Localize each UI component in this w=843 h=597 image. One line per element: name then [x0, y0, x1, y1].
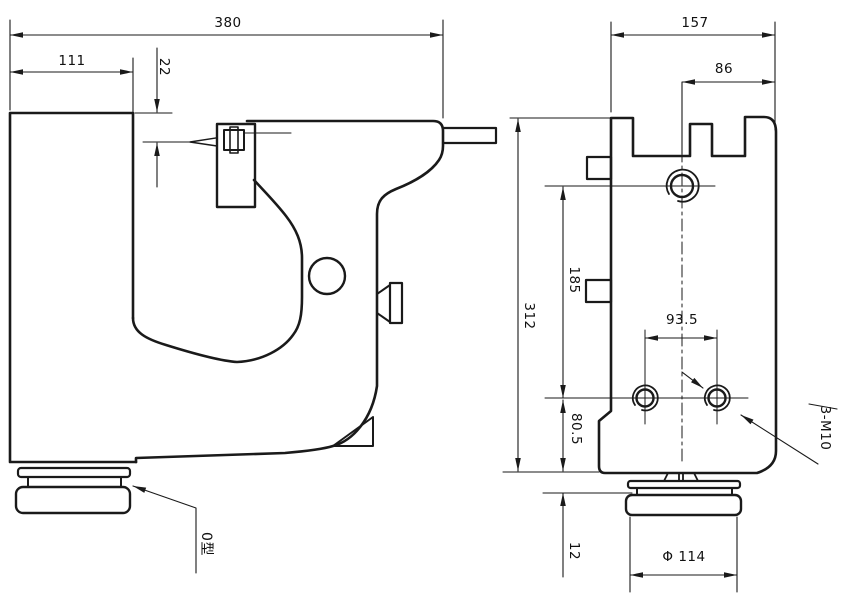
arrowhead	[154, 99, 160, 112]
dim-hole-spacing: 93.5	[666, 312, 698, 328]
needle-head-block	[217, 124, 255, 207]
dim-312-lines	[510, 118, 611, 471]
arrowhead	[724, 572, 737, 578]
hand-hole	[309, 258, 345, 294]
pulley-bottom-flange	[626, 495, 741, 515]
needle	[190, 138, 217, 146]
arrowhead	[682, 79, 695, 85]
arrowhead	[691, 378, 703, 388]
pulley-top-flange	[628, 481, 740, 488]
gusset-rib	[333, 417, 373, 446]
arrowhead	[430, 32, 443, 38]
side-knob	[390, 283, 402, 323]
pulley-drum	[16, 487, 130, 513]
dim-top-offset: 22	[156, 58, 172, 76]
arrowhead	[120, 69, 133, 75]
dim-lower-height: 80.5	[568, 413, 584, 445]
arrowhead	[560, 400, 566, 413]
arrowhead	[10, 69, 23, 75]
arrowhead	[560, 458, 566, 471]
side-tab-upper	[587, 157, 611, 179]
arrowhead	[611, 32, 624, 38]
arrowhead	[560, 187, 566, 200]
dim-total-height: 312	[521, 302, 537, 329]
thread-leader-lines	[682, 372, 837, 464]
technical-drawing-page: 380 111 22 0型 157 86 312 185 80.5 12 93.…	[0, 0, 843, 597]
left-view-drawing	[10, 20, 496, 573]
arrowhead	[630, 572, 643, 578]
dim-12-lines	[543, 493, 632, 577]
arrowhead	[704, 335, 717, 341]
belt-leader-arrow	[133, 486, 146, 493]
pulley-top-flange	[18, 468, 130, 477]
needle-clamp	[224, 130, 244, 150]
arrowhead	[560, 493, 566, 506]
side-tab-lower	[586, 280, 611, 302]
dim-foot-height: 12	[566, 542, 582, 560]
belt-type-label: 0型	[197, 532, 217, 556]
dim-157-lines	[611, 22, 775, 130]
dim-pulley-diameter: Φ 114	[662, 549, 705, 565]
arrowhead	[154, 143, 160, 156]
arrowhead	[560, 385, 566, 398]
arrowhead	[515, 458, 521, 471]
belt-leader-line	[133, 486, 196, 573]
dim-upper-height: 185	[566, 266, 582, 293]
arrowhead	[741, 415, 754, 424]
frame-slab-outline	[10, 113, 136, 462]
side-knob-cone	[377, 285, 390, 322]
arrowhead	[762, 32, 775, 38]
pulley-front-view	[626, 473, 741, 515]
dim-right-width: 86	[715, 61, 733, 77]
arrowhead	[762, 79, 775, 85]
frame-arm-outline	[136, 121, 443, 462]
arrowhead	[10, 32, 23, 38]
right-view-drawing	[503, 22, 837, 592]
dim-total-width-left-view: 380	[214, 15, 241, 31]
arrowhead	[515, 119, 521, 132]
pulley-groove-neck	[28, 477, 121, 487]
dim-total-width-right-view: 157	[681, 15, 708, 31]
dim-left-width: 111	[58, 53, 85, 69]
dim-380-lines	[10, 20, 443, 118]
pulley-side-view	[16, 468, 130, 513]
drawing-canvas	[0, 0, 843, 597]
arrowhead	[645, 335, 658, 341]
rear-shaft	[443, 128, 496, 143]
thread-spec-label: 3-M10	[817, 406, 833, 451]
